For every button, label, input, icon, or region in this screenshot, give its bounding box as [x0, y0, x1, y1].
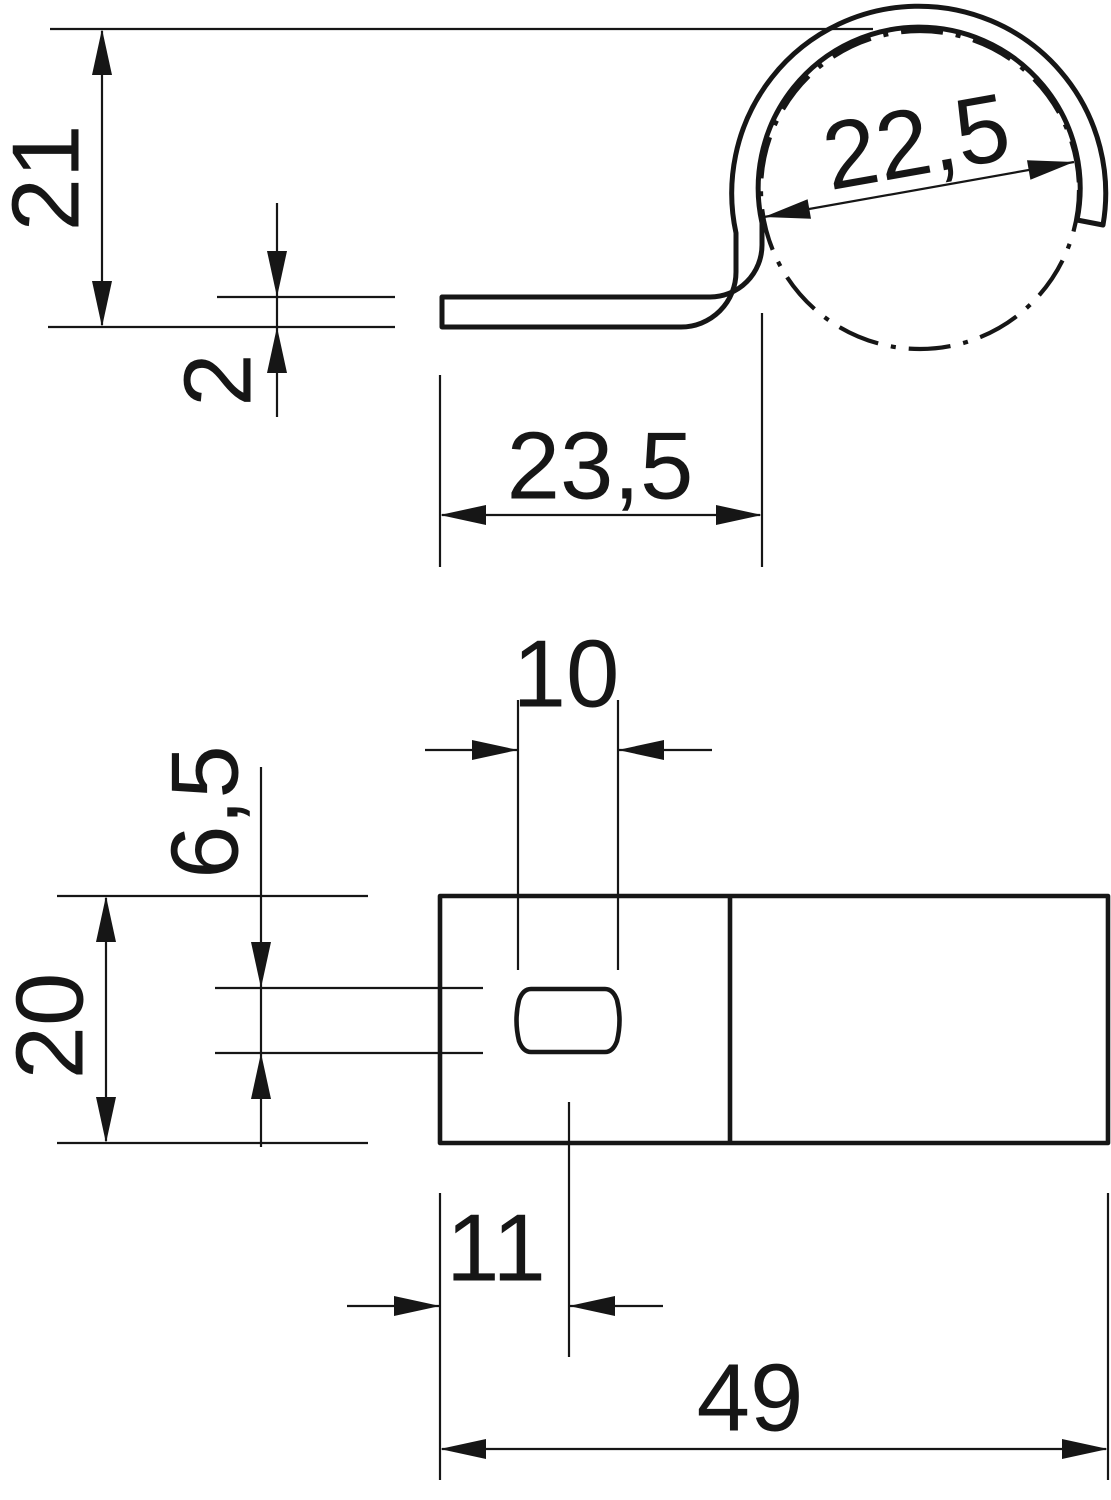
- dim-thickness-2: 2: [165, 203, 395, 417]
- dim-label-diameter: 22,5: [815, 73, 1018, 211]
- dim-label-slot-width: 6,5: [152, 745, 259, 878]
- slot-hole: [517, 989, 620, 1052]
- dim-label-thickness: 2: [165, 353, 272, 406]
- technical-drawing: 21 2 23,5 22,5 10 6,5: [0, 0, 1111, 1500]
- arrowhead-right: [716, 505, 762, 525]
- arrowhead-down: [92, 281, 112, 327]
- dim-label-strap-width: 20: [0, 973, 104, 1080]
- dim-label-slot-offset: 11: [446, 1195, 546, 1302]
- arrowhead-left: [569, 1296, 615, 1316]
- dim-label-total-length: 49: [697, 1345, 804, 1452]
- arrowhead-up: [251, 1053, 271, 1099]
- dim-label-base-length: 23,5: [507, 413, 694, 520]
- arrowhead-down: [251, 942, 271, 988]
- arrowhead-left: [440, 505, 486, 525]
- arrowhead-down: [96, 1097, 116, 1143]
- arrowhead-lower-left: [764, 199, 811, 219]
- dim-diameter-22-5: 22,5: [764, 73, 1074, 219]
- arrowhead-right: [394, 1296, 440, 1316]
- arrowhead-upper-right: [1027, 160, 1074, 180]
- arrowhead-down: [267, 251, 287, 297]
- plan-view: [440, 896, 1108, 1143]
- arrowhead-right: [1062, 1439, 1108, 1459]
- arrowhead-up: [92, 29, 112, 75]
- dim-label-slot-length: 10: [513, 621, 620, 728]
- arrowhead-left: [618, 740, 664, 760]
- dim-label-height: 21: [0, 125, 100, 232]
- dim-slot-width-6-5: 6,5: [152, 745, 483, 1147]
- arrowhead-left: [440, 1439, 486, 1459]
- dim-base-length-23-5: 23,5: [440, 313, 762, 567]
- arrowhead-up: [96, 896, 116, 942]
- technical-drawing-page: 21 2 23,5 22,5 10 6,5: [0, 0, 1111, 1500]
- dim-slot-offset-11: 11: [347, 1102, 663, 1480]
- dim-strap-width-20: 20: [0, 896, 368, 1143]
- arrowhead-right: [472, 740, 518, 760]
